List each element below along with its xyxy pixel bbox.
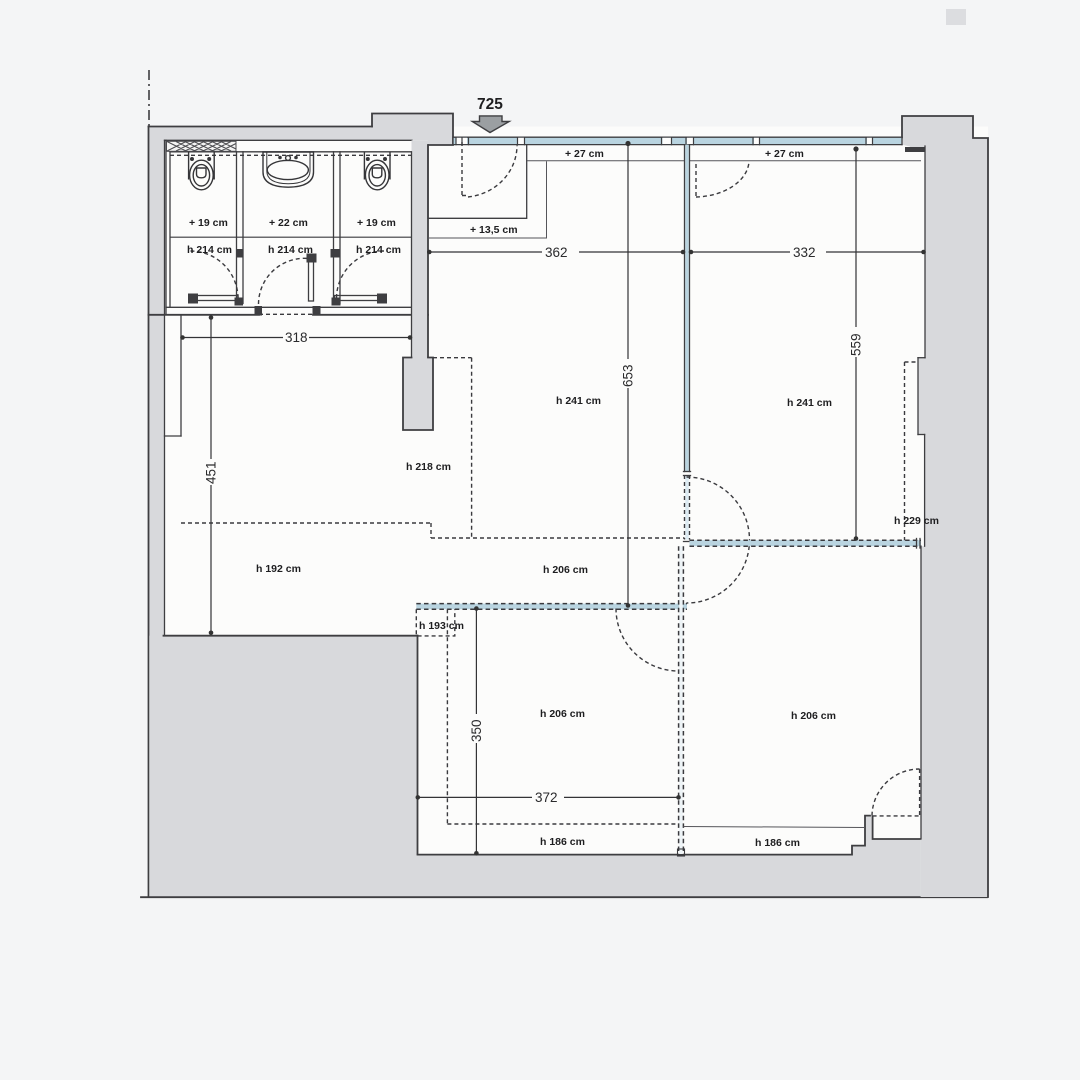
svg-text:451: 451	[204, 461, 219, 484]
svg-text:h 214 cm: h 214 cm	[268, 244, 313, 256]
svg-text:h 186 cm: h 186 cm	[540, 836, 585, 848]
svg-text:h 206 cm: h 206 cm	[543, 564, 588, 576]
svg-text:+ 13,5 cm: + 13,5 cm	[470, 224, 518, 236]
svg-text:318: 318	[285, 330, 308, 345]
svg-text:h 241 cm: h 241 cm	[556, 395, 601, 407]
svg-text:+ 27 cm: + 27 cm	[565, 148, 604, 160]
svg-text:+ 22 cm: + 22 cm	[269, 217, 308, 229]
svg-text:559: 559	[849, 333, 864, 356]
svg-text:350: 350	[469, 719, 484, 742]
svg-text:h 206 cm: h 206 cm	[540, 708, 585, 720]
svg-text:+ 27 cm: + 27 cm	[765, 148, 804, 160]
svg-text:372: 372	[535, 790, 558, 805]
svg-text:h 206 cm: h 206 cm	[791, 710, 836, 722]
svg-text:653: 653	[621, 364, 636, 387]
svg-text:h 193 cm: h 193 cm	[419, 620, 464, 632]
svg-text:362: 362	[545, 245, 568, 260]
svg-text:h 218 cm: h 218 cm	[406, 461, 451, 473]
svg-text:h 229 cm: h 229 cm	[894, 515, 939, 527]
svg-text:h 192 cm: h 192 cm	[256, 563, 301, 575]
svg-text:332: 332	[793, 245, 816, 260]
svg-text:h 214 cm: h 214 cm	[356, 244, 401, 256]
svg-text:+ 19 cm: + 19 cm	[357, 217, 396, 229]
svg-text:h 186 cm: h 186 cm	[755, 837, 800, 849]
svg-text:725: 725	[477, 96, 503, 113]
svg-text:+ 19 cm: + 19 cm	[189, 217, 228, 229]
svg-text:h 214 cm: h 214 cm	[187, 244, 232, 256]
svg-text:h 241 cm: h 241 cm	[787, 397, 832, 409]
